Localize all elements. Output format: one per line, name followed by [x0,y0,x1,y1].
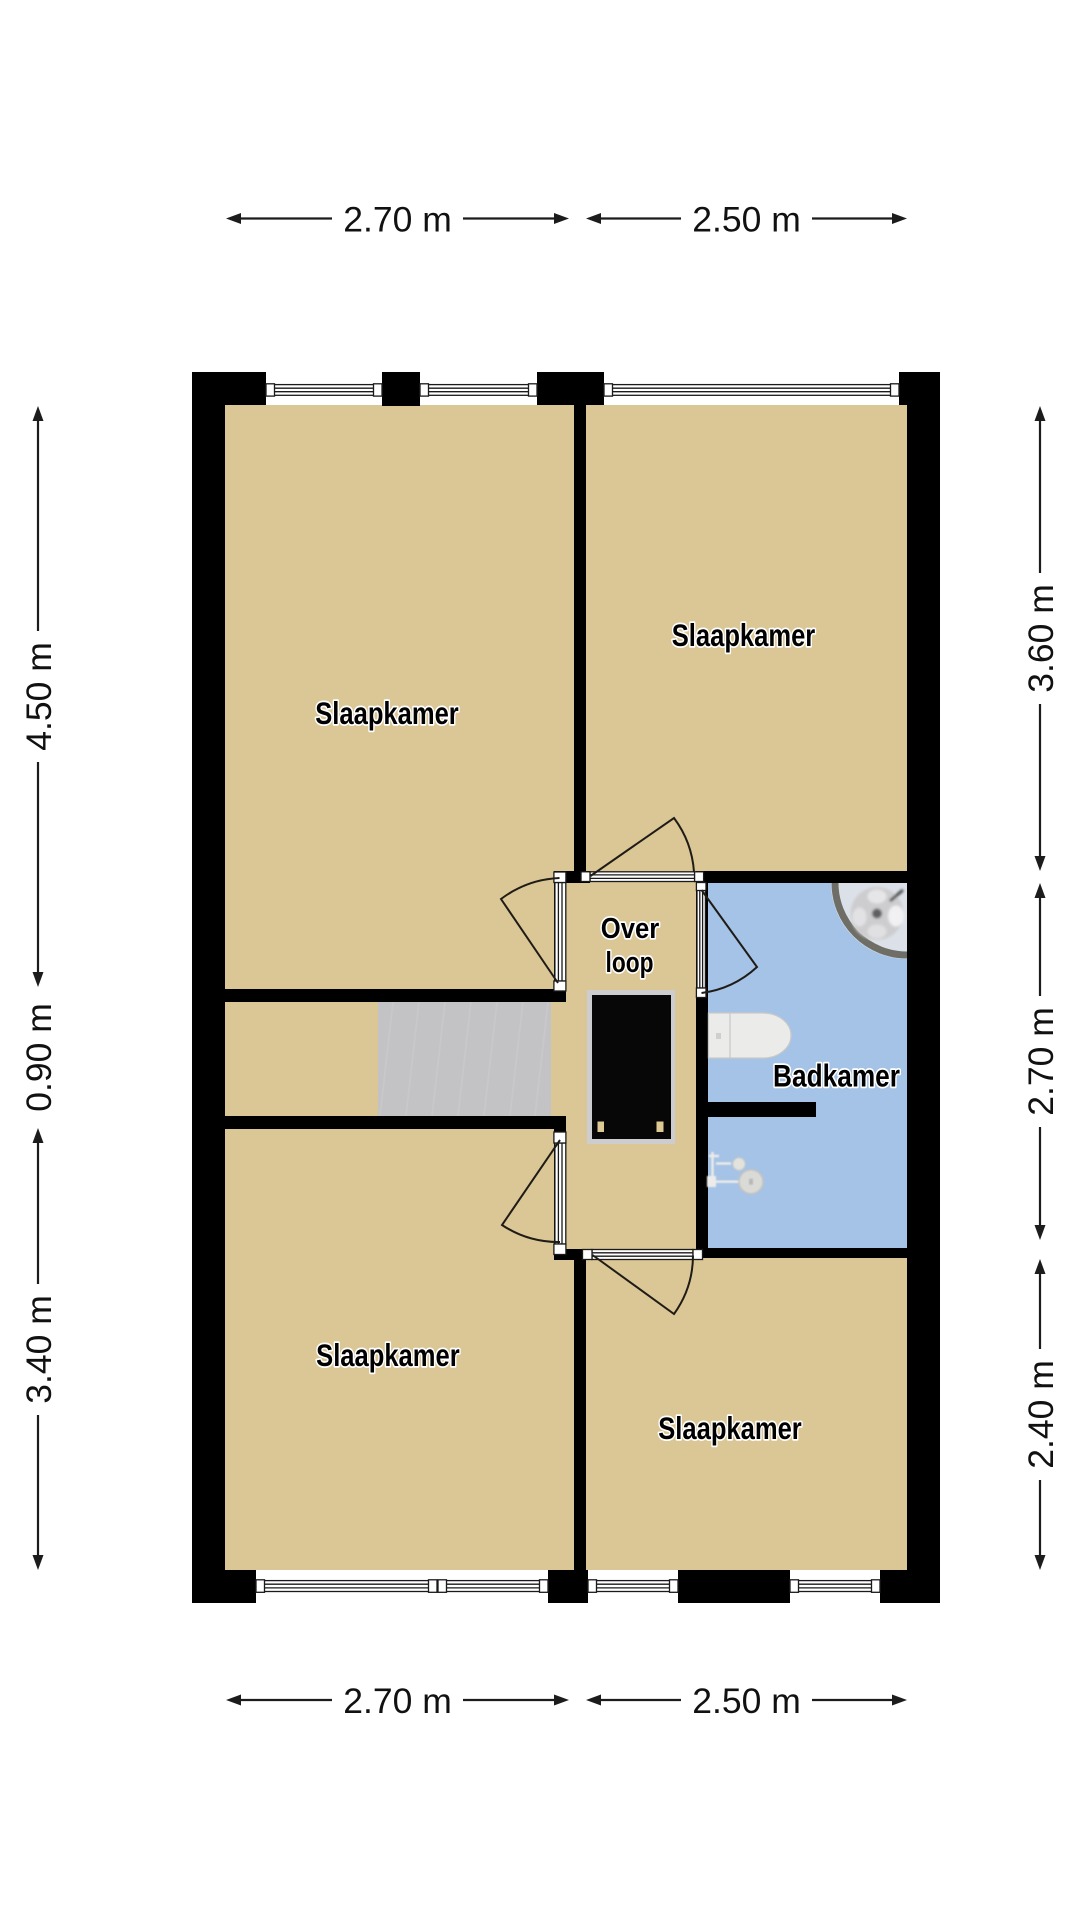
svg-text:2.70 m: 2.70 m [1021,1007,1061,1116]
svg-text:2.70 m: 2.70 m [343,1681,452,1721]
svg-text:2.40 m: 2.40 m [1021,1360,1061,1469]
svg-text:2.50 m: 2.50 m [692,200,801,240]
svg-text:2.50 m: 2.50 m [692,1681,801,1721]
svg-text:2.70 m: 2.70 m [343,200,452,240]
svg-text:Badkamer: Badkamer [773,1058,900,1094]
svg-text:Slaapkamer: Slaapkamer [315,695,459,731]
svg-text:loop: loop [606,947,654,979]
svg-text:Slaapkamer: Slaapkamer [672,617,816,653]
svg-text:Over: Over [601,913,660,945]
svg-text:3.60 m: 3.60 m [1021,584,1061,693]
svg-text:Slaapkamer: Slaapkamer [316,1337,460,1373]
svg-text:Slaapkamer: Slaapkamer [658,1410,802,1446]
svg-text:4.50 m: 4.50 m [19,642,59,751]
svg-text:0.90 m: 0.90 m [19,1003,59,1112]
svg-text:3.40 m: 3.40 m [19,1295,59,1404]
